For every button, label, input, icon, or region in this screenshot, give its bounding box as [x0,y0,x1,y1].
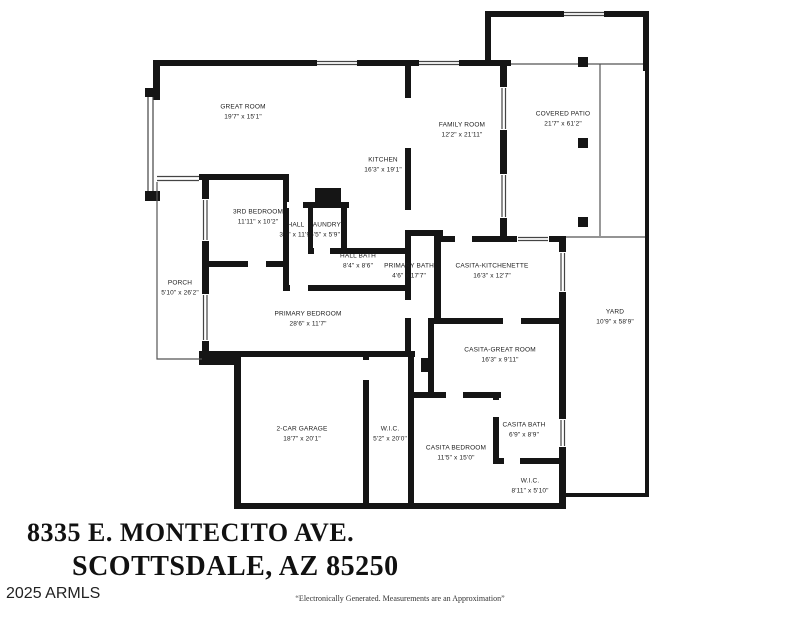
address-line-2: SCOTTSDALE, AZ 85250 [72,551,399,583]
room-label-casita-bath: CASITA BATH 6'9" x 8'9" [503,420,546,440]
room-label-primary-bedroom: PRIMARY BEDROOM 28'6" x 11'7" [274,309,341,329]
room-label-yard: YARD 10'9" x 58'9" [596,307,634,327]
room-label-casita-great-room: CASITA-GREAT ROOM 16'3" x 9'11" [464,345,536,365]
room-label-casita-kitchenette: CASITA-KITCHENETTE 16'3" x 12'7" [455,261,528,281]
room-label-2-car-garage: 2-CAR GARAGE 18'7" x 20'1" [277,424,328,444]
room-label-3rd-bedroom: 3RD BEDROOM 11'11" x 10'2" [233,207,283,227]
room-label-covered-patio: COVERED PATIO 21'7" x 61'2" [536,109,590,129]
room-label-primary-bath: PRIMARY BATH 4'6" x 17'7" [384,261,434,281]
floor-plan-page: GREAT ROOM 19'7" x 15'1" KITCHEN 16'3" x… [0,0,800,618]
address-line-1: 8335 E. MONTECITO AVE. [27,518,354,548]
room-label-casita-bedroom: CASITA BEDROOM 11'5" x 15'0" [426,443,486,463]
room-label-hall-bath: HALL BATH 8'4" x 8'6" [340,251,376,271]
room-label-kitchen: KITCHEN 16'3" x 19'1" [364,155,402,175]
room-label-hall: HALL 3'9" x 11'9" [279,220,312,240]
patio-posts [578,57,588,227]
room-label-family-room: FAMILY ROOM 12'2" x 21'11" [439,120,485,140]
window-symbols [148,10,604,447]
disclaimer-text: “Electronically Generated. Measurements … [0,594,800,603]
room-label-great-room: GREAT ROOM 19'7" x 15'1" [220,102,265,122]
room-label-laundry: LAUNDRY 6'5" x 5'9" [309,220,341,240]
room-label-wic-casita: W.I.C. 8'11" x 5'10" [511,476,548,496]
room-label-porch: PORCH 5'10" x 26'2" [161,278,199,298]
room-label-wic-garage-side: W.I.C. 5'2" x 20'0" [373,424,407,444]
